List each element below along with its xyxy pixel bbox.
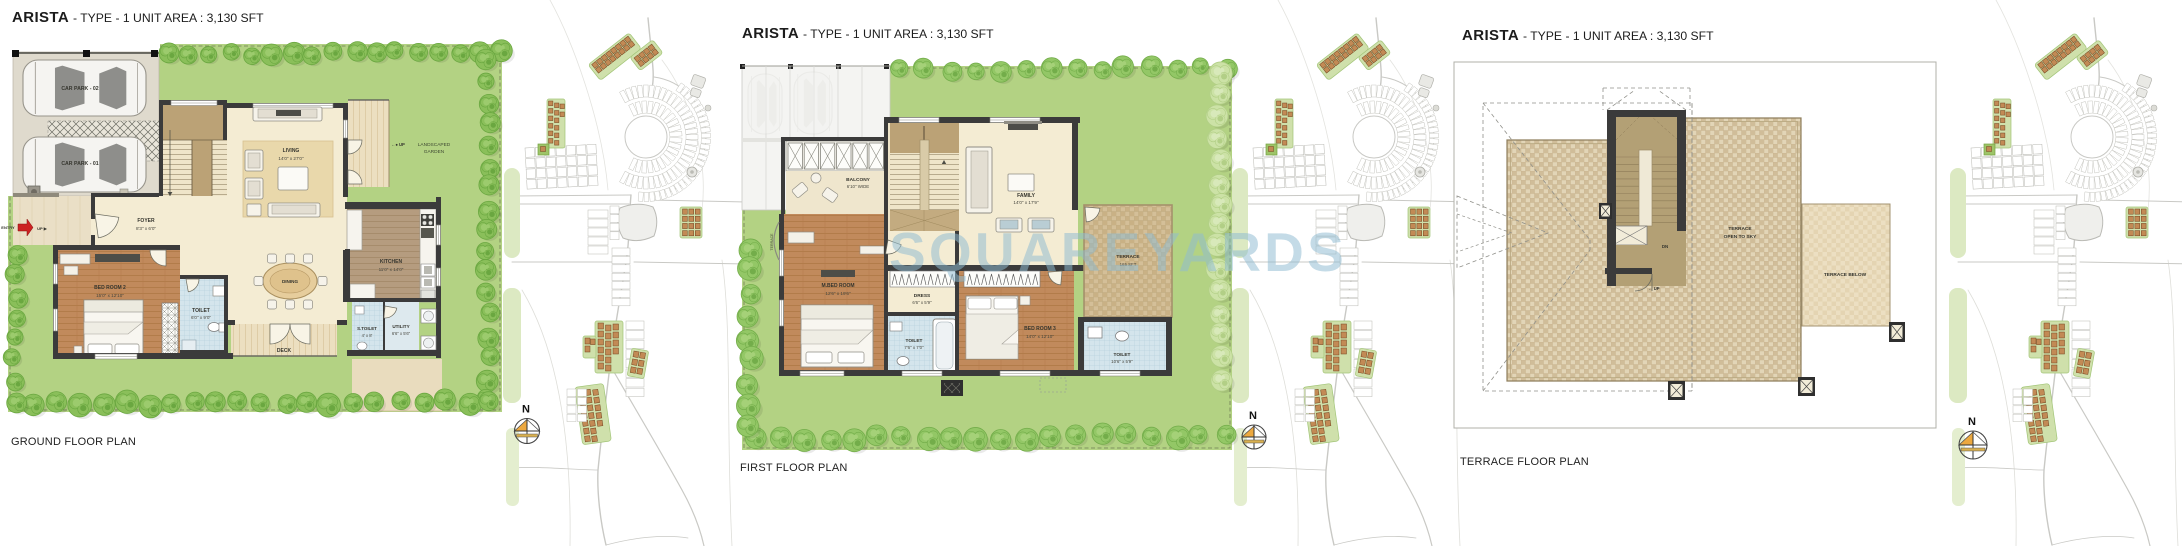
svg-text:TERRACE FLOOR PLAN: TERRACE FLOOR PLAN: [1460, 456, 1589, 468]
svg-text:SQUAREYARDS: SQUAREYARDS: [889, 221, 1347, 283]
svg-text:TERRACE BELOW: TERRACE BELOW: [1824, 272, 1867, 278]
svg-text:TOILET: TOILET: [906, 338, 923, 344]
svg-text:UTILITY: UTILITY: [392, 324, 409, 329]
svg-text:FAMILY: FAMILY: [1017, 193, 1036, 199]
svg-text:FOYER: FOYER: [137, 218, 155, 224]
svg-text:DRESS: DRESS: [914, 293, 931, 299]
svg-text:7'6" x 7'0": 7'6" x 7'0": [904, 345, 924, 350]
svg-text:6'6" x 5'6": 6'6" x 5'6": [392, 331, 411, 336]
svg-text:4' x 8': 4' x 8': [362, 333, 373, 338]
svg-text:DN: DN: [1662, 244, 1668, 249]
svg-text:12'6" x 19'6": 12'6" x 19'6": [825, 291, 851, 296]
svg-text:ARISTA: ARISTA: [12, 9, 69, 26]
svg-text:8'3" x 6'0": 8'3" x 6'0": [136, 226, 156, 231]
svg-text:BED ROOM 2: BED ROOM 2: [94, 285, 126, 291]
svg-text:CAR PARK - 01: CAR PARK - 01: [61, 161, 98, 167]
svg-text:GROUND FLOOR PLAN: GROUND FLOOR PLAN: [11, 436, 136, 448]
svg-text:M.BED ROOM: M.BED ROOM: [821, 283, 854, 289]
svg-text:14'0" x 27'0": 14'0" x 27'0": [278, 156, 304, 161]
svg-text:N: N: [1249, 410, 1257, 422]
svg-text:KITCHEN: KITCHEN: [380, 259, 403, 265]
svg-text:← UP: ← UP: [1648, 286, 1659, 291]
svg-text:ENTRY: ENTRY: [1, 225, 15, 230]
svg-text:UP ▶: UP ▶: [37, 226, 48, 231]
svg-text:CAR PARK - 02: CAR PARK - 02: [61, 86, 98, 92]
svg-text:10'6" x 5'9": 10'6" x 5'9": [1111, 359, 1133, 364]
svg-text:GARDEN: GARDEN: [424, 149, 445, 155]
svg-text:- TYPE - 1 UNIT AREA : 3,130: - TYPE - 1 UNIT AREA : 3,130 SFT: [803, 27, 994, 41]
svg-text:LIVING: LIVING: [283, 148, 300, 154]
svg-text:6'6" x 5'9": 6'6" x 5'9": [912, 300, 932, 305]
svg-text:11'0" x 14'0": 11'0" x 14'0": [379, 267, 404, 272]
svg-text:15'0" x 12'10": 15'0" x 12'10": [96, 293, 124, 298]
svg-text:OPEN TO SKY: OPEN TO SKY: [1724, 234, 1757, 240]
svg-text:6'10" WIDE: 6'10" WIDE: [847, 184, 869, 189]
svg-text:- TYPE - 1 UNIT AREA : 3,130: - TYPE - 1 UNIT AREA : 3,130 SFT: [1523, 29, 1714, 43]
svg-text:DINING: DINING: [282, 279, 299, 284]
svg-text:ARISTA: ARISTA: [742, 25, 799, 42]
svg-text:ARISTA: ARISTA: [1462, 27, 1519, 44]
svg-text:BALCONY: BALCONY: [846, 177, 871, 183]
svg-text:6'0" x 9'0": 6'0" x 9'0": [191, 315, 211, 320]
svg-text:DECK: DECK: [277, 348, 292, 354]
svg-text:←● UP: ←● UP: [391, 142, 405, 147]
svg-text:N: N: [1968, 416, 1976, 428]
svg-text:14'0" x 17'9": 14'0" x 17'9": [1013, 200, 1039, 205]
svg-text:14'0" x 12'10": 14'0" x 12'10": [1026, 334, 1054, 339]
svg-text:TERRACE: TERRACE: [770, 233, 774, 251]
svg-text:TOILET: TOILET: [192, 308, 210, 314]
svg-text:LANDSCAPED: LANDSCAPED: [418, 142, 451, 148]
svg-text:FIRST FLOOR PLAN: FIRST FLOOR PLAN: [740, 462, 848, 474]
svg-text:BED ROOM 3: BED ROOM 3: [1024, 326, 1056, 332]
svg-text:N: N: [522, 404, 530, 416]
svg-text:TERRACE: TERRACE: [1728, 226, 1752, 232]
svg-text:- TYPE - 1 UNIT AREA : 3,130: - TYPE - 1 UNIT AREA : 3,130 SFT: [73, 11, 264, 25]
svg-text:S.TOILET: S.TOILET: [357, 326, 377, 331]
svg-text:TOILET: TOILET: [1114, 352, 1131, 358]
